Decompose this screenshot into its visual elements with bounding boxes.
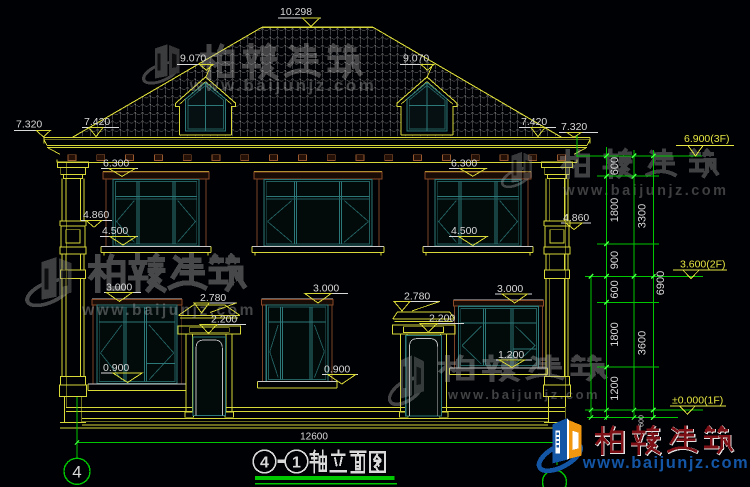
svg-text:4.500: 4.500	[102, 225, 128, 237]
svg-text:7.420: 7.420	[84, 116, 110, 128]
svg-text:1200: 1200	[609, 376, 621, 400]
svg-text:3.600(2F): 3.600(2F)	[680, 259, 726, 271]
svg-text:1.200: 1.200	[498, 349, 524, 361]
svg-text:4.860: 4.860	[83, 209, 109, 221]
svg-text:3300: 3300	[637, 204, 649, 228]
svg-text:4: 4	[260, 455, 269, 472]
svg-text:600: 600	[639, 415, 646, 427]
svg-text:2.780: 2.780	[404, 291, 430, 303]
svg-text:900: 900	[609, 251, 621, 269]
svg-text:±0.000(1F): ±0.000(1F)	[672, 395, 723, 407]
svg-text:www.baijunjz.com: www.baijunjz.com	[447, 387, 600, 402]
svg-text:3.000: 3.000	[106, 282, 132, 294]
svg-text:7.420: 7.420	[521, 116, 547, 128]
svg-text:0.900: 0.900	[103, 362, 129, 374]
svg-text:6900: 6900	[655, 271, 667, 295]
svg-text:4.860: 4.860	[563, 212, 589, 224]
svg-text:6.300: 6.300	[103, 158, 129, 170]
svg-text:9.070: 9.070	[180, 53, 206, 65]
svg-text:1: 1	[292, 455, 301, 472]
svg-text:www.baijunjz.com: www.baijunjz.com	[582, 454, 749, 472]
svg-text:4.500: 4.500	[451, 225, 477, 237]
svg-text:2.200: 2.200	[429, 313, 455, 325]
svg-text:3.000: 3.000	[313, 283, 339, 295]
svg-text:www.baijunjz.com: www.baijunjz.com	[189, 76, 377, 95]
svg-text:7.320: 7.320	[561, 121, 587, 133]
svg-text:2.780: 2.780	[200, 292, 226, 304]
svg-text:3.000: 3.000	[497, 283, 523, 295]
svg-text:6.300: 6.300	[451, 158, 477, 170]
svg-text:0.900: 0.900	[324, 364, 350, 376]
svg-text:7.320: 7.320	[16, 119, 42, 131]
svg-text:9.070: 9.070	[403, 53, 429, 65]
svg-text:3600: 3600	[637, 331, 649, 355]
svg-text:600: 600	[609, 157, 621, 175]
svg-text:600: 600	[609, 280, 621, 298]
svg-text:6.900(3F): 6.900(3F)	[684, 133, 730, 145]
svg-text:1800: 1800	[609, 198, 621, 222]
svg-text:1800: 1800	[609, 322, 621, 346]
svg-text:12600: 12600	[300, 432, 328, 443]
svg-text:4: 4	[72, 463, 81, 482]
svg-text:10.298: 10.298	[280, 6, 312, 18]
svg-text:2.200: 2.200	[211, 314, 237, 326]
svg-text:www.baijunjz.com: www.baijunjz.com	[562, 183, 728, 199]
